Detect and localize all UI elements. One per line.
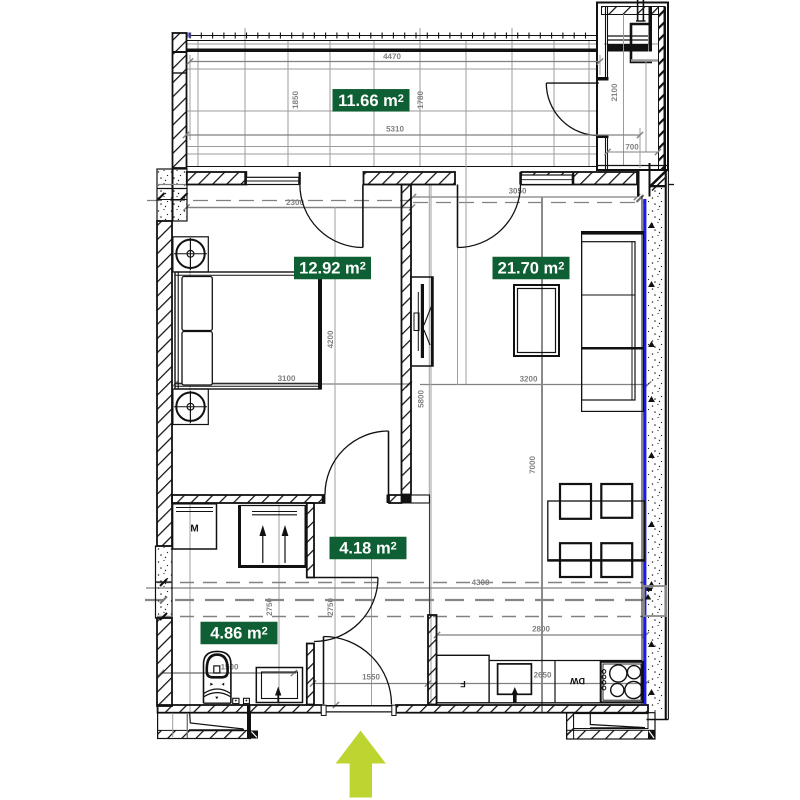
svg-text:5310: 5310 [386, 125, 404, 134]
svg-text:1780: 1780 [416, 91, 425, 109]
svg-text:2800: 2800 [532, 625, 550, 634]
svg-text:7000: 7000 [528, 456, 537, 474]
svg-text:M: M [190, 524, 198, 535]
svg-text:21.70 m2: 21.70 m2 [498, 260, 565, 278]
svg-text:2100: 2100 [610, 83, 619, 101]
svg-text:3100: 3100 [278, 374, 296, 383]
svg-text:4.86 m2: 4.86 m2 [210, 625, 268, 643]
svg-text:1550: 1550 [362, 673, 380, 682]
svg-text:3200: 3200 [520, 375, 538, 384]
svg-text:5800: 5800 [417, 390, 426, 408]
svg-text:12.92 m2: 12.92 m2 [299, 260, 366, 278]
svg-text:4470: 4470 [383, 52, 401, 61]
svg-text:700: 700 [625, 143, 639, 152]
svg-text:11.66 m2: 11.66 m2 [338, 92, 404, 110]
svg-text:1850: 1850 [291, 91, 300, 109]
svg-text:3050: 3050 [509, 187, 527, 196]
svg-text:F: F [460, 679, 466, 689]
svg-text:4.18 m2: 4.18 m2 [339, 540, 397, 558]
svg-text:4200: 4200 [326, 330, 335, 348]
svg-text:4300: 4300 [472, 578, 490, 587]
svg-text:2650: 2650 [534, 671, 552, 680]
svg-text:DW: DW [570, 676, 585, 686]
svg-text:1500: 1500 [221, 663, 239, 672]
